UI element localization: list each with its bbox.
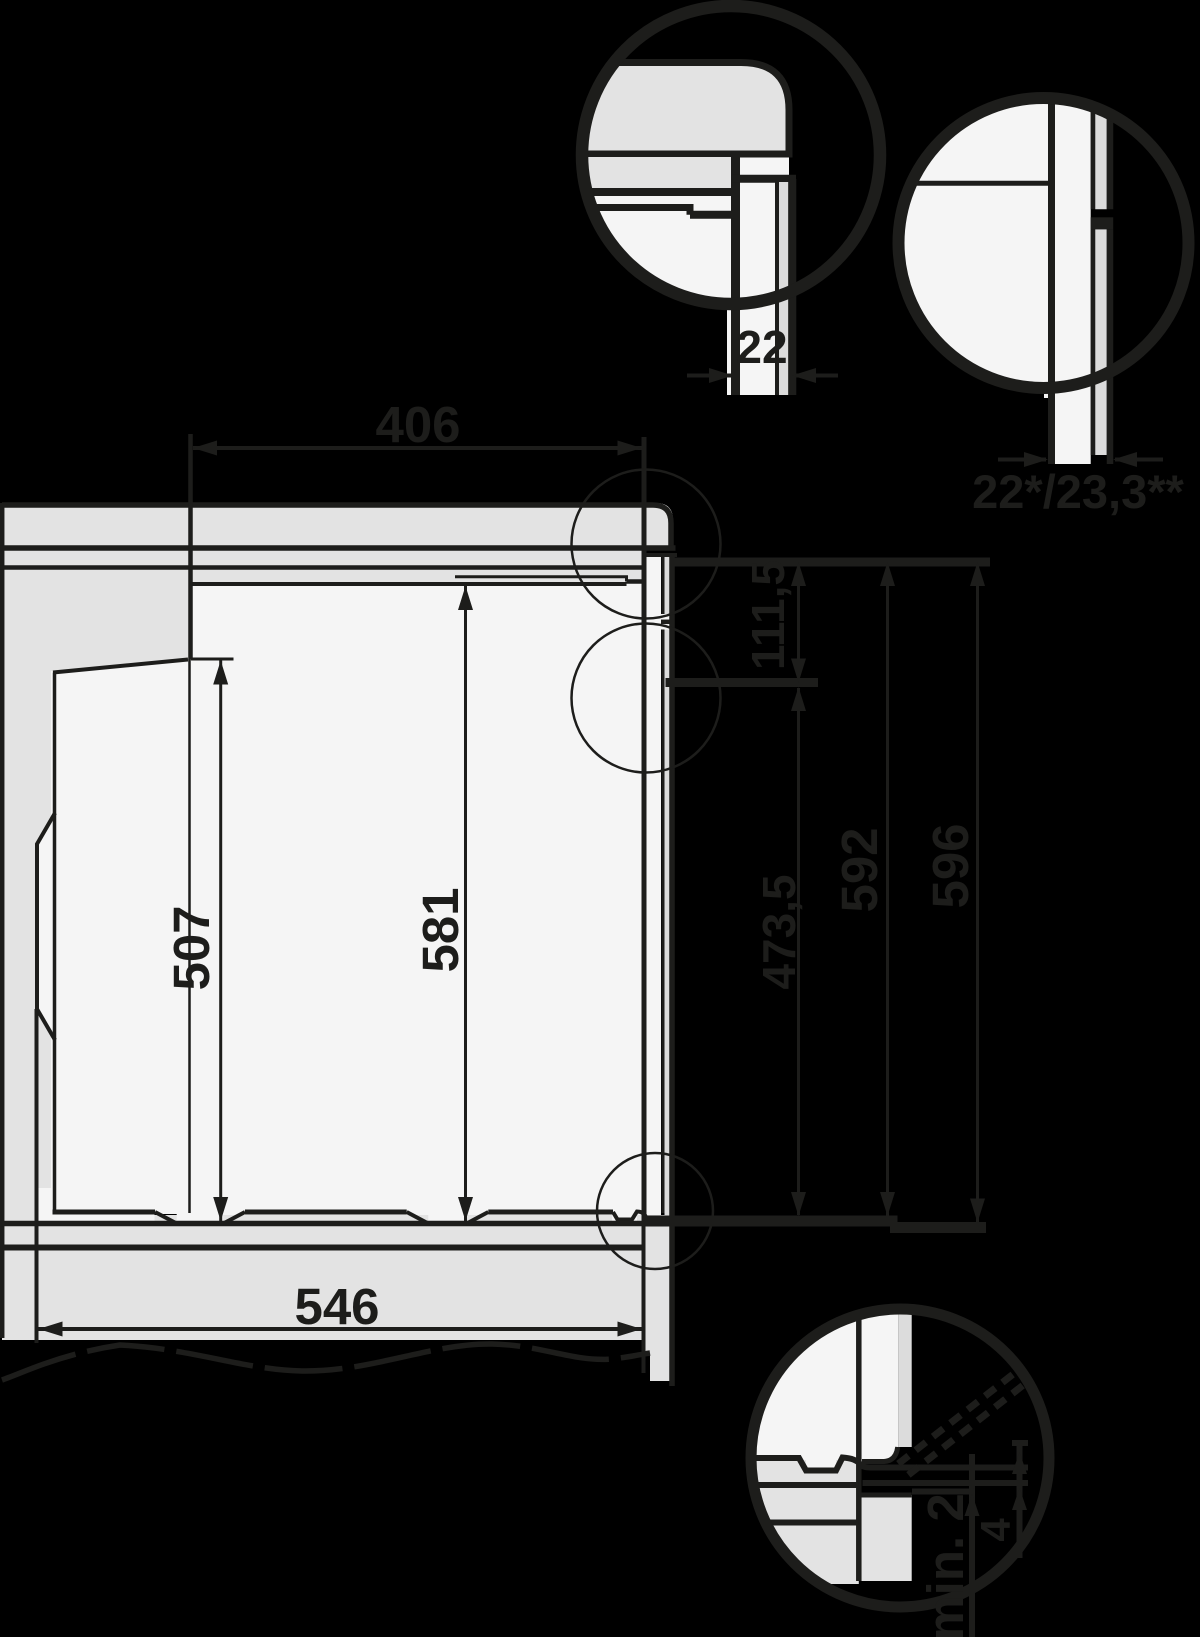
svg-text:596: 596 xyxy=(922,823,979,908)
svg-text:111,5: 111,5 xyxy=(742,560,794,670)
svg-text:min. 2: min. 2 xyxy=(917,1493,974,1637)
svg-text:4: 4 xyxy=(972,1518,1019,1542)
svg-text:546: 546 xyxy=(294,1278,379,1335)
svg-text:473,5: 473,5 xyxy=(753,874,805,989)
svg-text:406: 406 xyxy=(375,396,460,453)
svg-text:22*/23,3**: 22*/23,3** xyxy=(972,465,1184,518)
svg-text:581: 581 xyxy=(412,887,469,972)
svg-text:507: 507 xyxy=(163,905,220,990)
svg-text:592: 592 xyxy=(831,827,888,912)
svg-text:22: 22 xyxy=(736,321,787,373)
